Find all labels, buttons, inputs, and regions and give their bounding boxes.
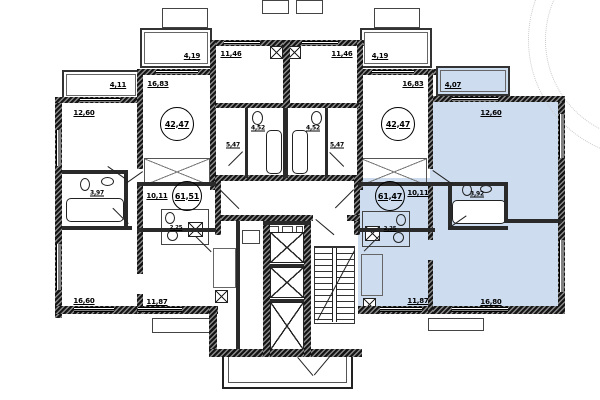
total-area-badge: 61,47	[375, 181, 405, 211]
kitchen-counter	[361, 254, 383, 296]
area-label-wc: 2,25	[170, 225, 183, 231]
apartment-unit-center-right[interactable]	[290, 28, 432, 178]
window	[380, 307, 422, 312]
area-label-hall: 10,11	[407, 189, 428, 197]
roof-tab	[162, 8, 208, 28]
area-label-kitchen: 11,87	[407, 297, 428, 305]
duct-box	[242, 230, 260, 244]
wall-segment	[304, 221, 311, 357]
wall-segment	[283, 108, 288, 178]
vent-stack	[296, 0, 323, 14]
wall-segment	[270, 264, 304, 267]
wall-segment	[283, 40, 290, 106]
wall-segment	[236, 221, 240, 349]
area-label-hall: 10,11	[146, 192, 167, 200]
porch-step	[428, 318, 484, 331]
total-area-badge: 61,51	[172, 181, 202, 211]
floor-plan: 4,11 12,60 3,97 10,11 61,51 2,25 16,60 1…	[0, 0, 600, 400]
toilet-icon	[396, 214, 406, 226]
apartment-unit-center-left[interactable]	[143, 28, 283, 178]
kitchen-counter	[213, 248, 236, 288]
window	[138, 307, 182, 312]
roof-tab	[374, 8, 420, 28]
elevator-shaft	[270, 302, 304, 350]
door-swing	[335, 189, 354, 208]
wall-segment	[209, 349, 362, 357]
sink-icon	[393, 232, 404, 243]
wall-segment	[270, 299, 304, 302]
wall-segment	[263, 221, 270, 357]
porch-step	[152, 318, 214, 333]
door-swing	[315, 219, 334, 235]
elevator-shaft	[270, 232, 304, 263]
wall-segment	[263, 221, 311, 225]
apartment-unit-right-highlighted[interactable]	[433, 66, 565, 314]
door-swing	[220, 190, 239, 209]
apartment-unit-left[interactable]	[55, 70, 143, 318]
stove-icon	[215, 290, 228, 303]
toilet-icon	[165, 212, 175, 224]
area-label-kitchen: 11,87	[146, 298, 167, 306]
elevator-shaft	[270, 267, 304, 298]
area-label-wc: 2,25	[384, 226, 397, 232]
vent-stack	[262, 0, 289, 14]
entrance-vestibule-inner	[228, 357, 347, 383]
wall-segment	[347, 215, 360, 221]
